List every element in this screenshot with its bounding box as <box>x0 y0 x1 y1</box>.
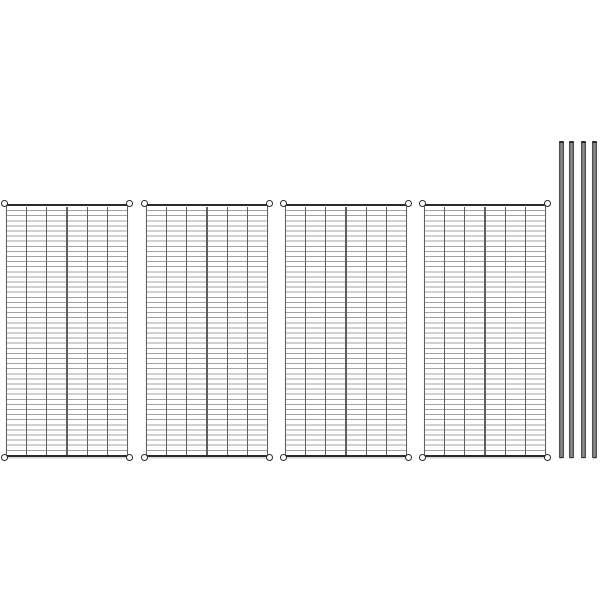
wire-shelf-panel <box>424 204 546 457</box>
corner-collar <box>544 454 551 461</box>
vertical-wire <box>484 207 485 455</box>
corner-collar <box>266 200 273 207</box>
vertical-wire <box>366 207 367 455</box>
corner-collar <box>419 454 426 461</box>
vertical-wire <box>206 207 207 455</box>
corner-collar <box>141 454 148 461</box>
wire-shelf-panel <box>146 204 268 457</box>
vertical-wire <box>107 207 108 455</box>
corner-collar <box>126 200 133 207</box>
corner-collar <box>405 454 412 461</box>
vertical-wire <box>444 207 445 455</box>
vertical-wire <box>525 207 526 455</box>
corner-collar <box>405 200 412 207</box>
shelving-post <box>592 141 597 458</box>
shelving-kit-product-image <box>0 0 600 600</box>
corner-collar <box>266 454 273 461</box>
wire-shelf-panel <box>6 204 128 457</box>
vertical-wire <box>166 207 167 455</box>
corner-collar <box>280 454 287 461</box>
wire-shelf-panel <box>285 204 407 457</box>
corner-collar <box>141 200 148 207</box>
shelving-post <box>581 141 586 458</box>
vertical-wire <box>186 207 187 455</box>
vertical-wire <box>247 207 248 455</box>
vertical-wire <box>227 207 228 455</box>
vertical-wire <box>46 207 47 455</box>
vertical-wire <box>305 207 306 455</box>
vertical-wire <box>464 207 465 455</box>
corner-collar <box>1 200 8 207</box>
corner-collar <box>126 454 133 461</box>
shelving-post <box>559 141 564 458</box>
vertical-wire <box>386 207 387 455</box>
corner-collar <box>280 200 287 207</box>
shelving-post <box>569 141 574 458</box>
vertical-wire <box>66 207 67 455</box>
corner-collar <box>1 454 8 461</box>
vertical-wire <box>325 207 326 455</box>
vertical-wire <box>26 207 27 455</box>
corner-collar <box>419 200 426 207</box>
corner-collar <box>544 200 551 207</box>
vertical-wire <box>345 207 346 455</box>
vertical-wire <box>505 207 506 455</box>
vertical-wire <box>87 207 88 455</box>
